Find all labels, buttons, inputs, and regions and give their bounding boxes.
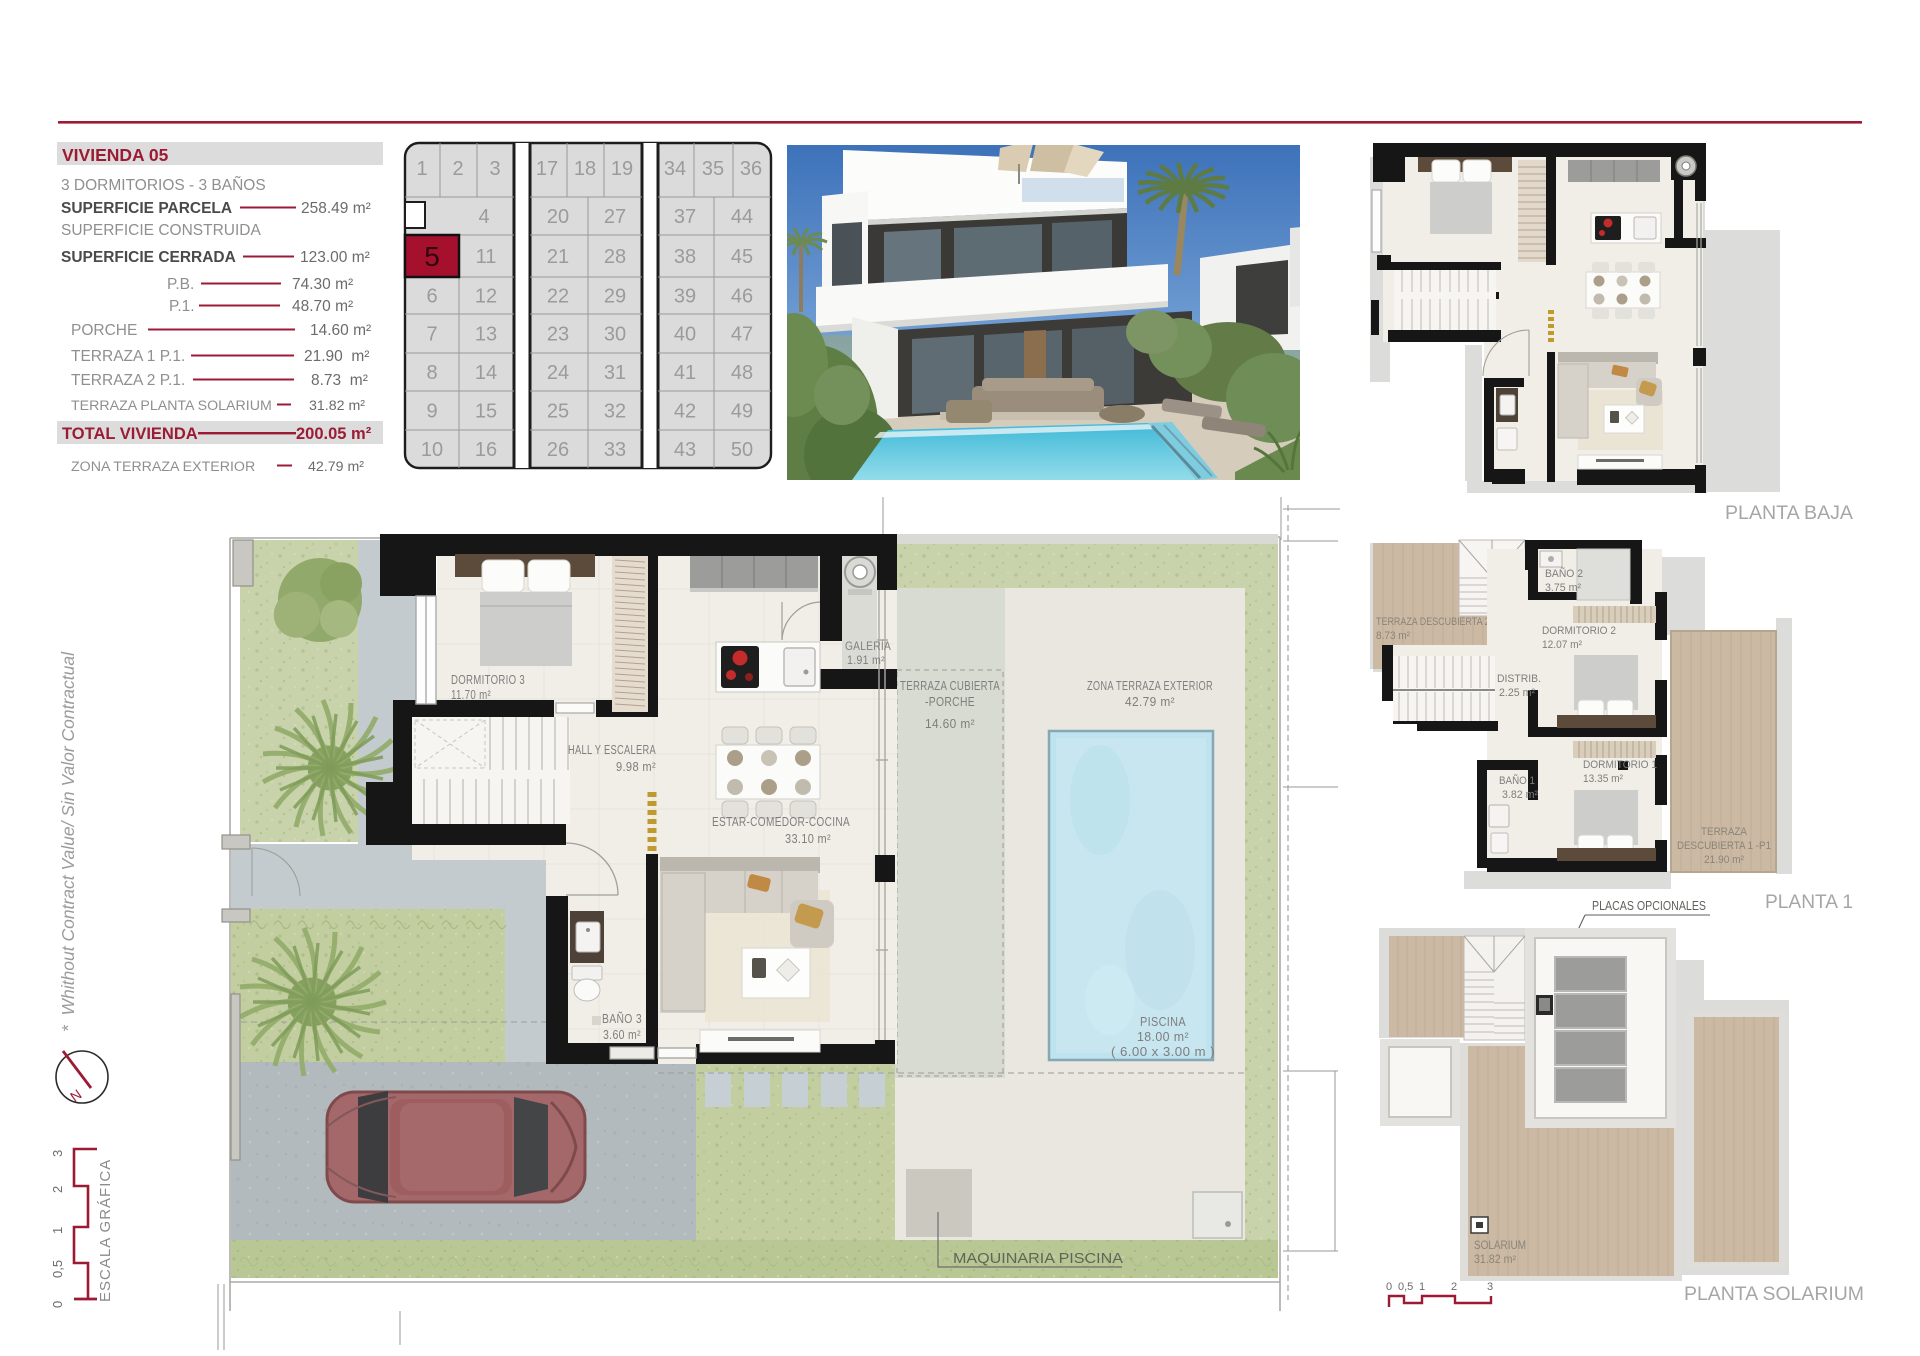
svg-text:50: 50: [731, 439, 753, 461]
svg-text:18.00 m²: 18.00 m²: [1137, 1029, 1189, 1044]
svg-text:11: 11: [476, 246, 497, 268]
svg-text:2: 2: [1451, 1281, 1457, 1293]
svg-text:PLACAS OPCIONALES: PLACAS OPCIONALES: [1592, 899, 1706, 913]
svg-text:1.91 m²: 1.91 m²: [847, 655, 885, 667]
svg-text:31: 31: [604, 362, 626, 384]
svg-text:21: 21: [547, 246, 569, 268]
svg-text:43: 43: [674, 439, 696, 461]
svg-text:31.82 m²: 31.82 m²: [1474, 1254, 1516, 1266]
svg-text:P.B.: P.B.: [167, 276, 194, 293]
svg-text:8.73 m²: 8.73 m²: [1376, 630, 1410, 642]
svg-text:26: 26: [547, 439, 569, 461]
svg-text:1: 1: [1419, 1281, 1425, 1293]
svg-text:3: 3: [1487, 1281, 1493, 1293]
svg-text:35: 35: [702, 158, 724, 180]
svg-text:3 DORMITORIOS - 3 BAÑOS: 3 DORMITORIOS - 3 BAÑOS: [61, 177, 266, 194]
svg-text:12: 12: [475, 286, 497, 308]
svg-text:2: 2: [50, 1186, 65, 1193]
svg-text:22: 22: [547, 286, 569, 308]
svg-text:16: 16: [475, 439, 497, 461]
svg-text:10: 10: [421, 439, 443, 461]
svg-text:8.73 m²: 8.73 m²: [311, 372, 368, 389]
svg-text:TERRAZA: TERRAZA: [1701, 826, 1748, 838]
svg-text:28: 28: [604, 246, 626, 268]
svg-text:TERRAZA 1 P.1.: TERRAZA 1 P.1.: [71, 348, 185, 365]
svg-text:74.30 m²: 74.30 m²: [292, 276, 353, 293]
svg-text:PLANTA SOLARIUM: PLANTA SOLARIUM: [1684, 1284, 1864, 1305]
svg-text:200.05 m²: 200.05 m²: [296, 425, 372, 443]
svg-text:SUPERFICIE CERRADA: SUPERFICIE CERRADA: [61, 249, 236, 266]
svg-text:4: 4: [478, 206, 489, 228]
svg-text:DISTRIB.: DISTRIB.: [1497, 673, 1541, 685]
svg-text:ZONA TERRAZA EXTERIOR: ZONA TERRAZA EXTERIOR: [1087, 678, 1213, 693]
svg-text:ESCALA GRÁFICA: ESCALA GRÁFICA: [97, 1159, 114, 1302]
svg-text:44: 44: [731, 206, 753, 228]
svg-text:1: 1: [416, 158, 427, 180]
svg-text:123.00 m²: 123.00 m²: [300, 249, 370, 266]
svg-text:25: 25: [547, 401, 569, 423]
svg-text:37: 37: [674, 206, 696, 228]
svg-text:36: 36: [740, 158, 762, 180]
svg-text:MAQUINARIA PISCINA: MAQUINARIA PISCINA: [953, 1250, 1123, 1267]
svg-text:24: 24: [547, 362, 569, 384]
svg-text:SUPERFICIE PARCELA: SUPERFICIE PARCELA: [61, 200, 232, 217]
svg-text:3: 3: [50, 1150, 65, 1157]
svg-text:-PORCHE: -PORCHE: [925, 694, 975, 709]
svg-text:3.60 m²: 3.60 m²: [603, 1028, 641, 1042]
svg-text:45: 45: [731, 246, 753, 268]
svg-text:19: 19: [611, 158, 633, 180]
svg-text:46: 46: [731, 286, 753, 308]
svg-text:1: 1: [50, 1227, 65, 1234]
svg-text:3.75 m²: 3.75 m²: [1545, 582, 1581, 594]
svg-text:21.90 m²: 21.90 m²: [304, 348, 369, 365]
svg-text:17: 17: [536, 158, 558, 180]
svg-text:0: 0: [1386, 1281, 1392, 1293]
svg-text:14.60 m²: 14.60 m²: [925, 716, 975, 731]
svg-text:42.79 m²: 42.79 m²: [308, 459, 364, 475]
svg-text:33: 33: [604, 439, 626, 461]
svg-text:12.07 m²: 12.07 m²: [1542, 639, 1582, 651]
svg-text:BAÑO 2: BAÑO 2: [1545, 567, 1583, 580]
svg-text:GALERÍA: GALERÍA: [845, 640, 891, 653]
svg-text:TERRAZA PLANTA SOLARIUM: TERRAZA PLANTA SOLARIUM: [71, 398, 272, 414]
svg-text:ESTAR-COMEDOR-COCINA: ESTAR-COMEDOR-COCINA: [712, 814, 850, 829]
svg-text:SUPERFICIE CONSTRUIDA: SUPERFICIE CONSTRUIDA: [61, 222, 261, 239]
svg-text:PLANTA 1: PLANTA 1: [1765, 892, 1853, 913]
svg-text:40: 40: [674, 324, 696, 346]
svg-text:PISCINA: PISCINA: [1140, 1014, 1186, 1029]
svg-text:3.82 m²: 3.82 m²: [1502, 789, 1538, 801]
svg-text:48: 48: [731, 362, 753, 384]
svg-text:39: 39: [674, 286, 696, 308]
svg-text:23: 23: [547, 324, 569, 346]
svg-text:DORMITORIO 1: DORMITORIO 1: [1583, 759, 1657, 771]
svg-text:6: 6: [426, 286, 437, 308]
svg-text:SOLARIUM: SOLARIUM: [1474, 1240, 1526, 1252]
svg-text:DESCUBIERTA 1 -P1: DESCUBIERTA 1 -P1: [1677, 840, 1771, 852]
svg-text:TERRAZA CUBIERTA: TERRAZA CUBIERTA: [900, 678, 1000, 693]
svg-text:41: 41: [674, 362, 696, 384]
svg-text:34: 34: [664, 158, 686, 180]
svg-text:DORMITORIO 2: DORMITORIO 2: [1542, 625, 1616, 637]
svg-text:27: 27: [604, 206, 626, 228]
svg-text:TOTAL VIVIENDA: TOTAL VIVIENDA: [62, 425, 198, 443]
svg-text:5: 5: [424, 241, 440, 272]
svg-text:BAÑO 1: BAÑO 1: [1499, 774, 1535, 787]
svg-text:0,5: 0,5: [50, 1260, 65, 1278]
svg-text:29: 29: [604, 286, 626, 308]
svg-text:258.49 m²: 258.49 m²: [301, 200, 371, 217]
svg-text:18: 18: [574, 158, 596, 180]
svg-text:15: 15: [475, 401, 497, 423]
svg-text:42: 42: [674, 401, 696, 423]
svg-text:BAÑO 3: BAÑO 3: [602, 1012, 642, 1026]
svg-text:14.60 m²: 14.60 m²: [310, 322, 371, 339]
svg-text:VIVIENDA 05: VIVIENDA 05: [62, 145, 169, 165]
svg-text:0: 0: [50, 1301, 65, 1308]
svg-text:2: 2: [452, 158, 463, 180]
svg-text:P.1.: P.1.: [169, 298, 195, 315]
svg-text:7: 7: [426, 324, 437, 346]
svg-text:38: 38: [674, 246, 696, 268]
svg-text:0,5: 0,5: [1398, 1281, 1413, 1293]
svg-text:48.70 m²: 48.70 m²: [292, 298, 353, 315]
svg-text:* Whithout Contract Value/ Si: * Whithout Contract Value/ Sin Valor Con…: [58, 651, 78, 1032]
svg-text:( 6.00 x 3.00 m ): ( 6.00 x 3.00 m ): [1111, 1044, 1215, 1059]
svg-text:HALL Y ESCALERA: HALL Y ESCALERA: [568, 742, 656, 757]
svg-text:21.90 m²: 21.90 m²: [1704, 854, 1744, 866]
svg-text:20: 20: [547, 206, 569, 228]
svg-text:31.82 m²: 31.82 m²: [309, 398, 365, 414]
svg-text:3: 3: [489, 158, 500, 180]
svg-text:13: 13: [475, 324, 497, 346]
svg-text:9.98 m²: 9.98 m²: [616, 759, 656, 774]
svg-text:42.79 m²: 42.79 m²: [1125, 694, 1175, 709]
svg-text:8: 8: [426, 362, 437, 384]
svg-text:2.25 m²: 2.25 m²: [1499, 687, 1535, 699]
svg-text:TERRAZA 2 P.1.: TERRAZA 2 P.1.: [71, 372, 185, 389]
svg-text:11.70 m²: 11.70 m²: [451, 687, 491, 702]
svg-text:PORCHE: PORCHE: [71, 322, 137, 339]
svg-text:13.35 m²: 13.35 m²: [1583, 773, 1623, 785]
svg-text:ZONA TERRAZA EXTERIOR: ZONA TERRAZA EXTERIOR: [71, 459, 255, 475]
svg-text:14: 14: [475, 362, 497, 384]
svg-text:30: 30: [604, 324, 626, 346]
svg-text:9: 9: [426, 401, 437, 423]
svg-text:PLANTA BAJA: PLANTA BAJA: [1725, 503, 1853, 524]
svg-text:DORMITORIO 3: DORMITORIO 3: [451, 672, 525, 687]
svg-text:33.10 m²: 33.10 m²: [785, 831, 831, 846]
svg-text:47: 47: [731, 324, 753, 346]
svg-text:TERRAZA DESCUBIERTA 2 -P1: TERRAZA DESCUBIERTA 2 -P1: [1376, 616, 1506, 628]
svg-text:49: 49: [731, 401, 753, 423]
svg-text:32: 32: [604, 401, 626, 423]
